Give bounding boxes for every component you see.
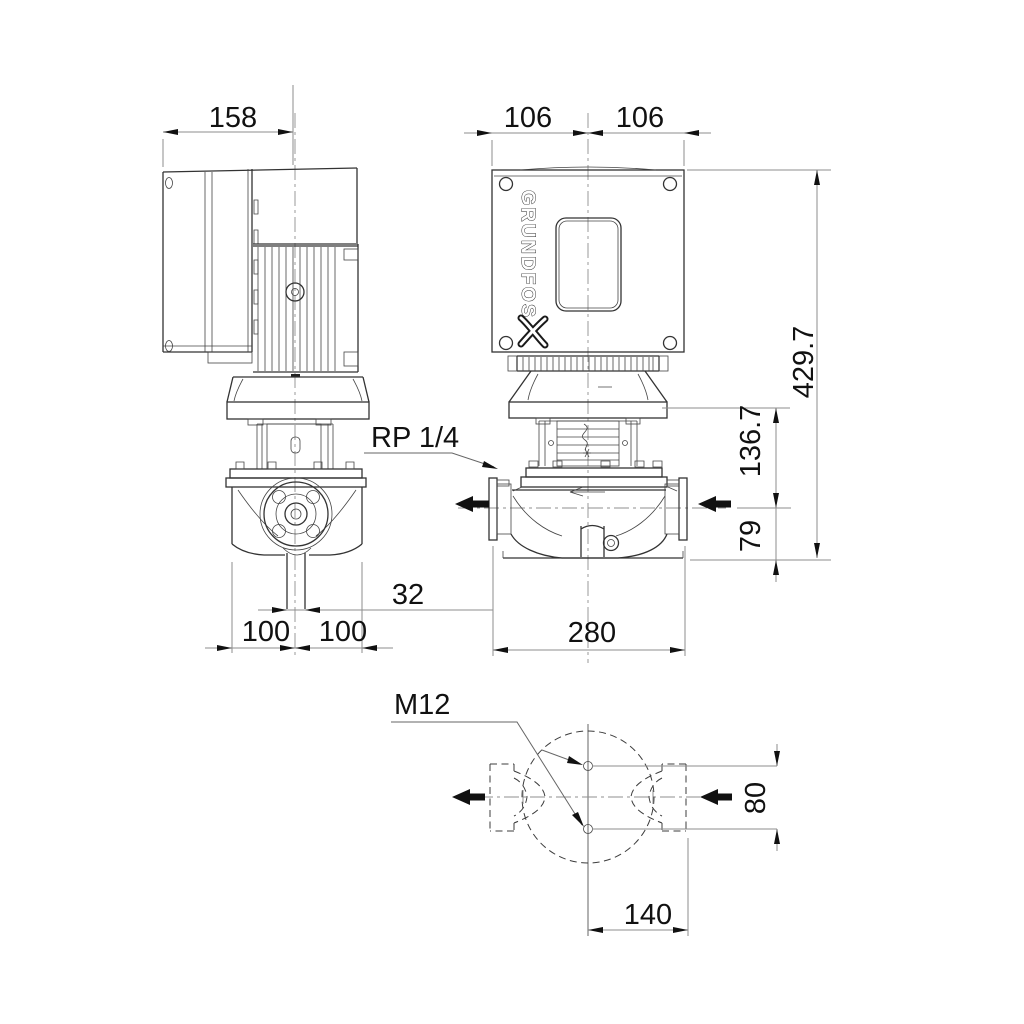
dim-429-7-label: 429.7 — [788, 326, 820, 399]
dim-106-right-label: 106 — [616, 102, 664, 134]
flow-direction-arrow-icon — [452, 789, 485, 805]
callout-m12: M12 — [391, 689, 584, 827]
dim-106-106: 106 106 — [464, 102, 711, 166]
dim-136-7: 136.7 — [662, 405, 791, 582]
grundfos-logo-icon — [521, 318, 545, 345]
box-screw-icon — [500, 337, 513, 350]
gauge-port-label: RP 1/4 — [371, 422, 459, 454]
dim-32-label: 32 — [392, 579, 424, 611]
dim-80-label: 80 — [740, 782, 772, 814]
dim-280-label: 280 — [568, 617, 616, 649]
drain-pipe — [287, 553, 305, 609]
port-flange-face — [264, 482, 328, 546]
vent-slots — [254, 200, 258, 334]
tapping-label: M12 — [394, 689, 450, 721]
box-screw-icon — [664, 337, 677, 350]
shaft-slot — [291, 437, 300, 453]
front-view: GRUNDFOS — [455, 113, 731, 663]
dim-136-7-label: 136.7 — [735, 405, 767, 478]
dim-80: 80 — [592, 744, 780, 851]
suction-flange-hidden — [490, 764, 545, 831]
box-screw-icon — [500, 178, 513, 191]
pump-dimension-drawing: GRUNDFOS — [0, 0, 1024, 1024]
side-view — [163, 113, 369, 655]
dim-140: 140 — [588, 838, 688, 936]
dim-140-label: 140 — [624, 899, 672, 931]
suction-flange — [489, 478, 497, 540]
dim-158: 158 — [163, 85, 293, 167]
dim-79-label: 79 — [735, 520, 767, 552]
display-window — [556, 218, 621, 311]
flange-bolt-hole — [273, 491, 286, 504]
drain-plug — [604, 536, 619, 551]
bottom-plan-view — [452, 724, 732, 936]
dim-79: 79 — [735, 520, 779, 575]
box-screw-icon — [166, 178, 173, 189]
drain-boss — [581, 526, 604, 558]
technical-drawing-page: GRUNDFOS — [0, 0, 1024, 1024]
dim-158-label: 158 — [209, 102, 257, 134]
dim-32: 32 — [258, 579, 493, 613]
dim-100-100: 100 100 — [205, 562, 393, 653]
dim-100-right-label: 100 — [319, 616, 367, 648]
discharge-flange-hidden — [631, 764, 686, 831]
flange-bolt-hole — [307, 491, 320, 504]
flange-bolt-hole — [307, 525, 320, 538]
flow-arrow-glyph — [570, 487, 605, 496]
flow-direction-arrow-icon — [698, 496, 731, 512]
callout-rp14: RP 1/4 — [364, 422, 498, 469]
sensor-cable — [582, 424, 587, 451]
discharge-flange — [679, 478, 687, 540]
dim-280: 280 — [493, 546, 685, 656]
grundfos-wordmark: GRUNDFOS — [517, 190, 539, 319]
dim-100-left-label: 100 — [242, 616, 290, 648]
box-screw-icon — [664, 178, 677, 191]
motor-fins — [258, 247, 335, 371]
flow-direction-arrow-icon — [700, 789, 732, 805]
flange-bolt-hole — [273, 525, 286, 538]
flow-direction-arrow-icon — [455, 496, 489, 512]
dim-106-left-label: 106 — [504, 102, 552, 134]
